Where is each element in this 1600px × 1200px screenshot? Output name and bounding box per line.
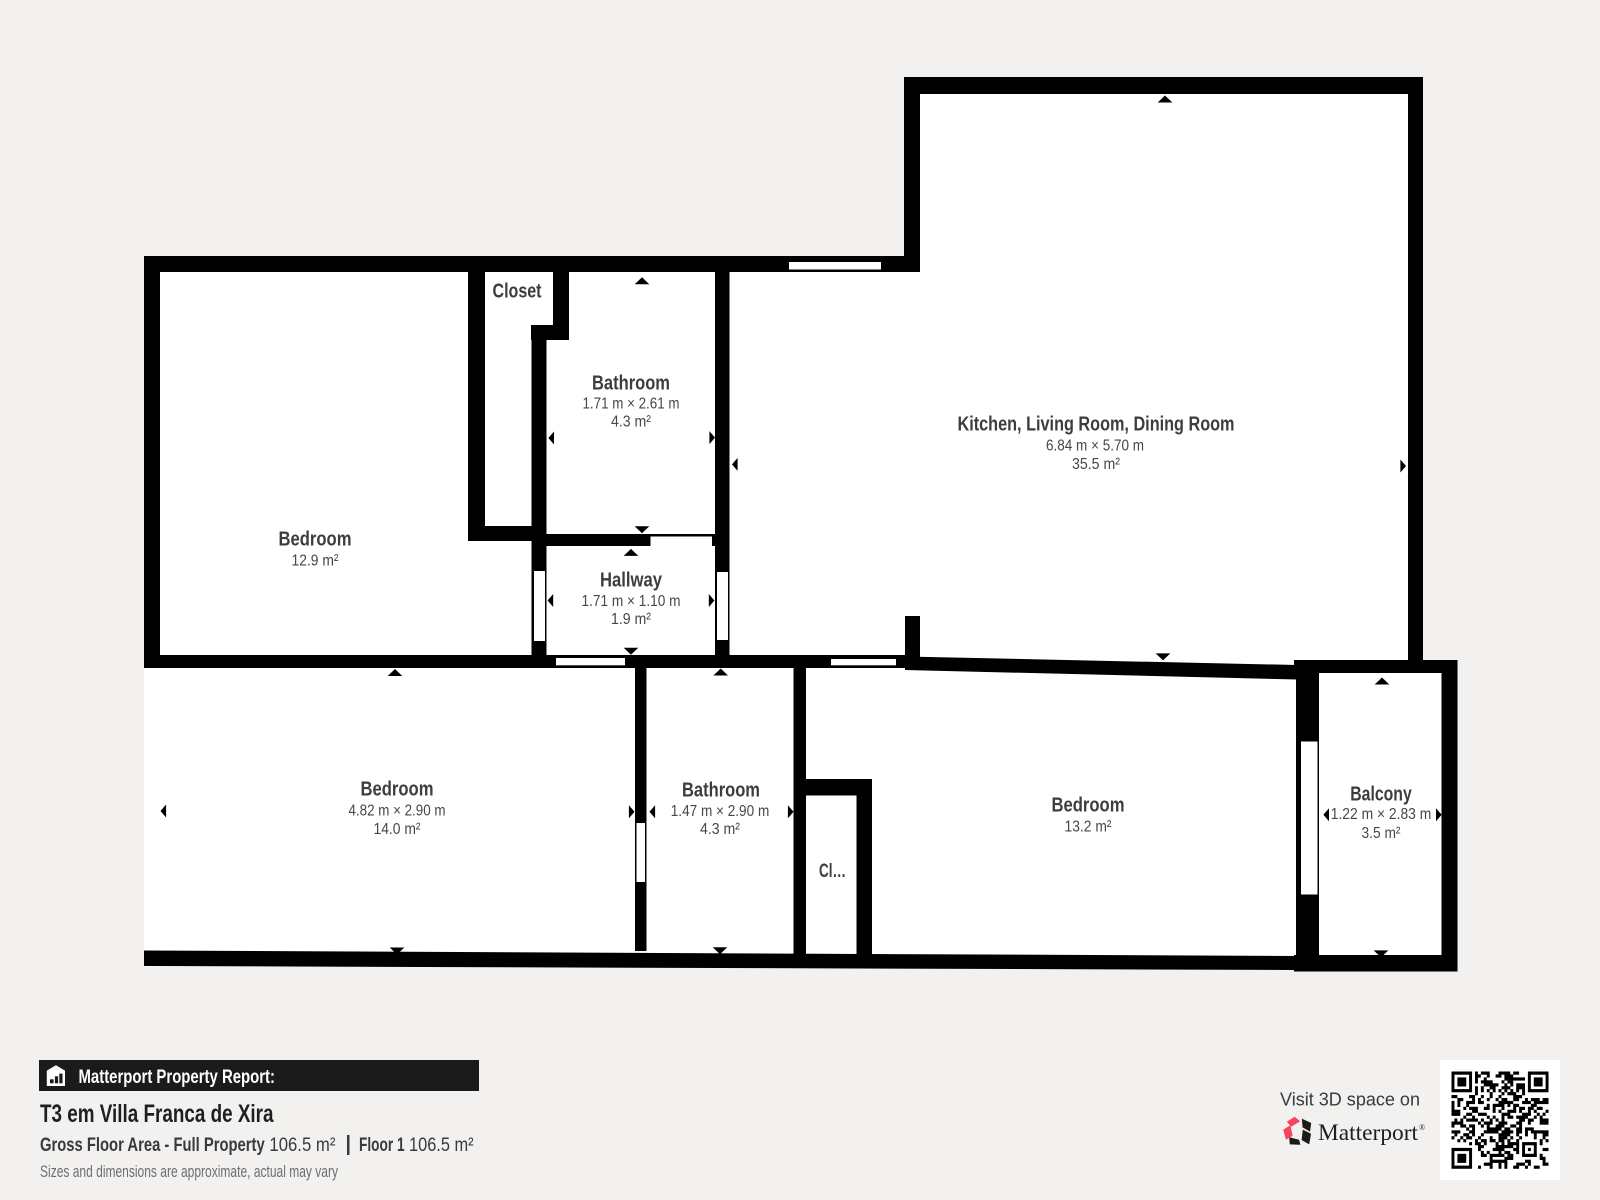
svg-text:Bathroom: Bathroom xyxy=(682,780,760,802)
svg-text:Hallway: Hallway xyxy=(600,570,663,592)
svg-text:12.9 m²: 12.9 m² xyxy=(292,553,340,570)
svg-text:Bedroom: Bedroom xyxy=(361,779,434,801)
svg-text:1.9 m²: 1.9 m² xyxy=(611,611,652,628)
svg-text:T3 em Villa Franca de Xira: T3 em Villa Franca de Xira xyxy=(40,1100,274,1128)
svg-text:Bedroom: Bedroom xyxy=(279,529,352,551)
svg-text:Sizes and dimensions are appro: Sizes and dimensions are approximate, ac… xyxy=(40,1162,338,1181)
svg-text:3.5 m²: 3.5 m² xyxy=(1362,825,1402,842)
svg-text:4.82 m × 2.90 m: 4.82 m × 2.90 m xyxy=(349,803,446,820)
svg-text:Gross Floor Area - Full Proper: Gross Floor Area - Full Property xyxy=(40,1134,265,1156)
svg-text:4.3 m²: 4.3 m² xyxy=(700,821,741,838)
svg-text:®: ® xyxy=(1419,1123,1425,1132)
svg-text:Closet: Closet xyxy=(493,281,542,303)
svg-text:6.84 m × 5.70 m: 6.84 m × 5.70 m xyxy=(1046,438,1144,455)
svg-text:35.5 m²: 35.5 m² xyxy=(1072,456,1121,473)
svg-text:13.2 m²: 13.2 m² xyxy=(1065,819,1113,836)
svg-text:106.5 m²: 106.5 m² xyxy=(409,1134,474,1156)
svg-text:Bathroom: Bathroom xyxy=(592,373,670,395)
svg-text:Visit 3D space on: Visit 3D space on xyxy=(1280,1089,1420,1110)
svg-text:1.47 m × 2.90 m: 1.47 m × 2.90 m xyxy=(671,803,770,820)
svg-text:Floor 1: Floor 1 xyxy=(359,1134,405,1156)
svg-text:14.0 m²: 14.0 m² xyxy=(374,821,422,838)
svg-text:4.3 m²: 4.3 m² xyxy=(611,414,652,431)
svg-text:106.5 m²: 106.5 m² xyxy=(269,1134,335,1156)
svg-text:1.22 m × 2.83 m: 1.22 m × 2.83 m xyxy=(1331,806,1432,823)
svg-text:Matterport: Matterport xyxy=(1318,1120,1419,1145)
svg-text:1.71 m × 1.10 m: 1.71 m × 1.10 m xyxy=(582,593,681,610)
svg-text:Bedroom: Bedroom xyxy=(1052,795,1125,817)
svg-text:Balcony: Balcony xyxy=(1350,784,1412,806)
svg-text:Cl…: Cl… xyxy=(819,861,846,882)
svg-text:1.71 m × 2.61 m: 1.71 m × 2.61 m xyxy=(583,396,680,413)
svg-text:Kitchen, Living Room, Dining R: Kitchen, Living Room, Dining Room xyxy=(958,414,1235,436)
svg-text:Matterport Property Report:: Matterport Property Report: xyxy=(79,1067,276,1088)
